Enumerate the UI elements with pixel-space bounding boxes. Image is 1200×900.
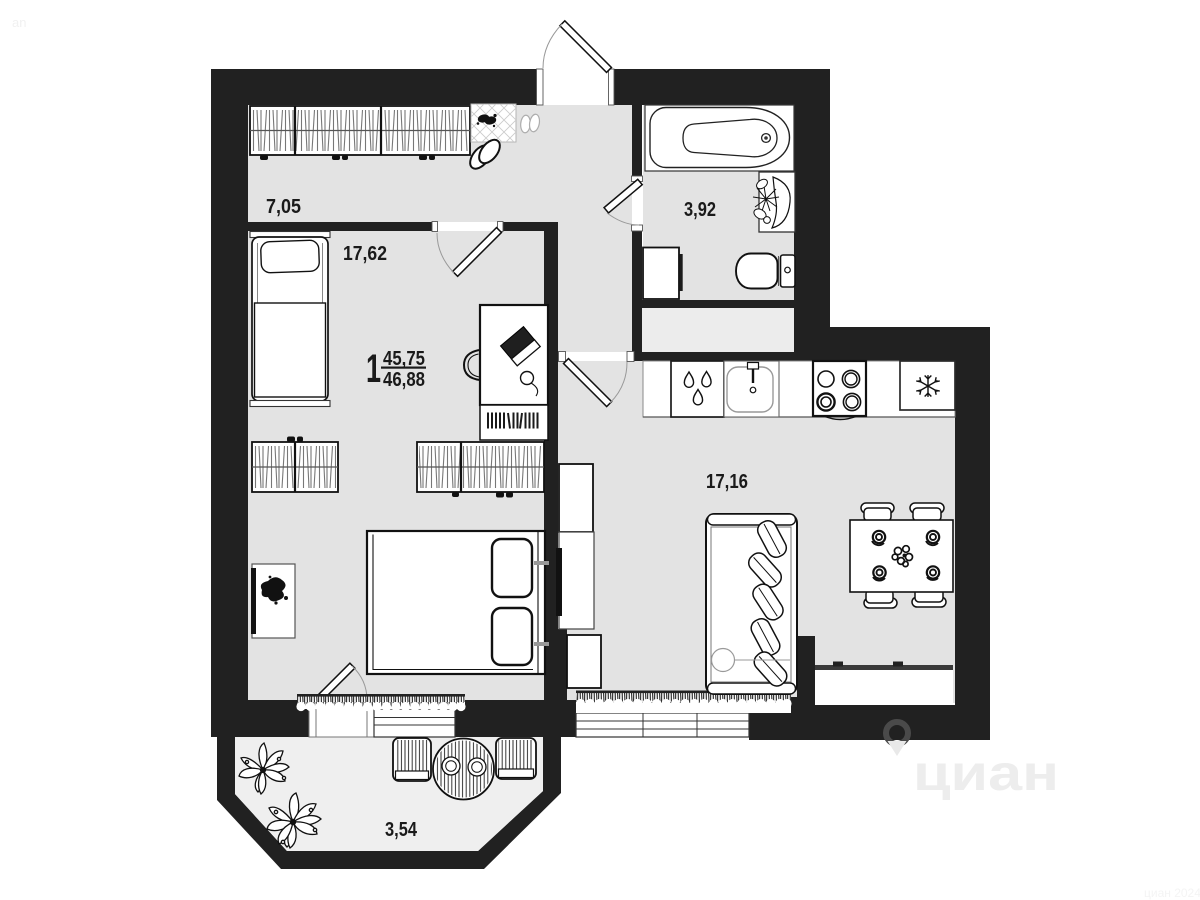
svg-text:an: an — [12, 15, 26, 30]
svg-text:17,62: 17,62 — [343, 242, 387, 265]
svg-text:3,92: 3,92 — [684, 198, 716, 221]
svg-text:3,54: 3,54 — [385, 818, 417, 841]
svg-text:циан: циан — [913, 745, 1059, 801]
svg-text:циан 2024: циан 2024 — [1144, 886, 1200, 900]
svg-text:1: 1 — [366, 347, 381, 391]
svg-text:46,88: 46,88 — [383, 368, 425, 391]
svg-text:7,05: 7,05 — [266, 195, 301, 218]
svg-text:17,16: 17,16 — [706, 470, 748, 493]
